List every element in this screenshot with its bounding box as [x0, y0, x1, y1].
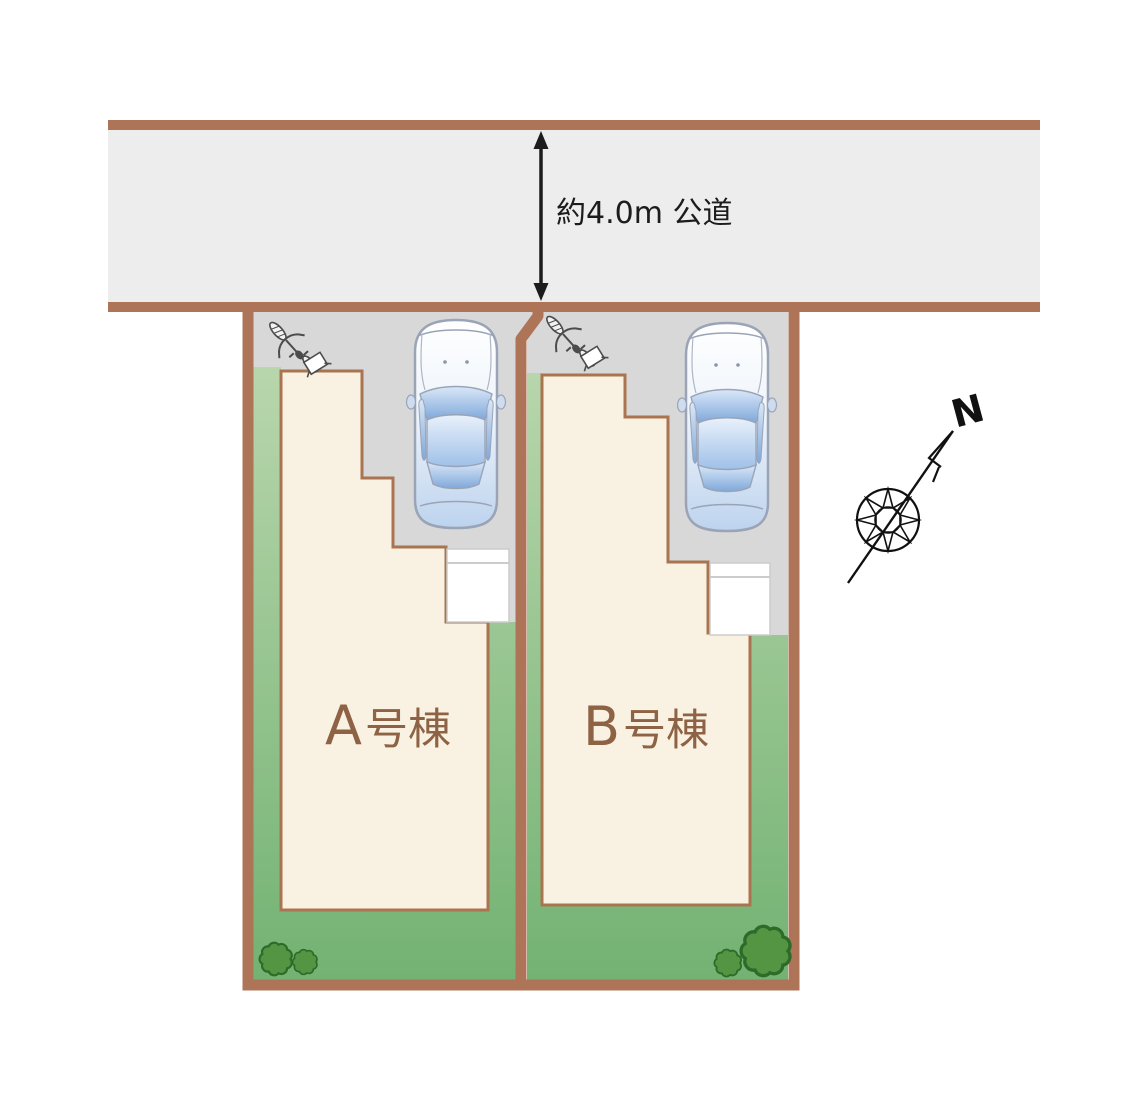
porch-a: [447, 549, 509, 622]
site-plan-svg: 約4.0m 公道 A号棟 B号棟 N: [0, 0, 1144, 1103]
building-a-letter: A: [325, 694, 362, 757]
road-top-border: [108, 120, 1040, 130]
porch-b: [710, 563, 770, 635]
car-a-top-view-icon: [407, 320, 506, 528]
car-b-top-view-icon: [678, 323, 777, 531]
compass-north-label: N: [947, 386, 989, 437]
building-b-letter: B: [583, 695, 620, 758]
site-plan: 約4.0m 公道 A号棟 B号棟 N: [0, 0, 1144, 1103]
building-b-suffix: 号棟: [623, 706, 709, 756]
bush-icon: [260, 943, 292, 976]
road-bottom-border: [108, 302, 1040, 312]
compass-rose-icon: N: [848, 386, 989, 583]
north-arrow-icon: [848, 431, 953, 583]
bush-icon: [714, 950, 741, 977]
bush-icon: [293, 950, 317, 975]
building-a-suffix: 号棟: [365, 705, 451, 755]
road-width-label: 約4.0m 公道: [556, 196, 732, 231]
bush-icon: [741, 926, 790, 975]
